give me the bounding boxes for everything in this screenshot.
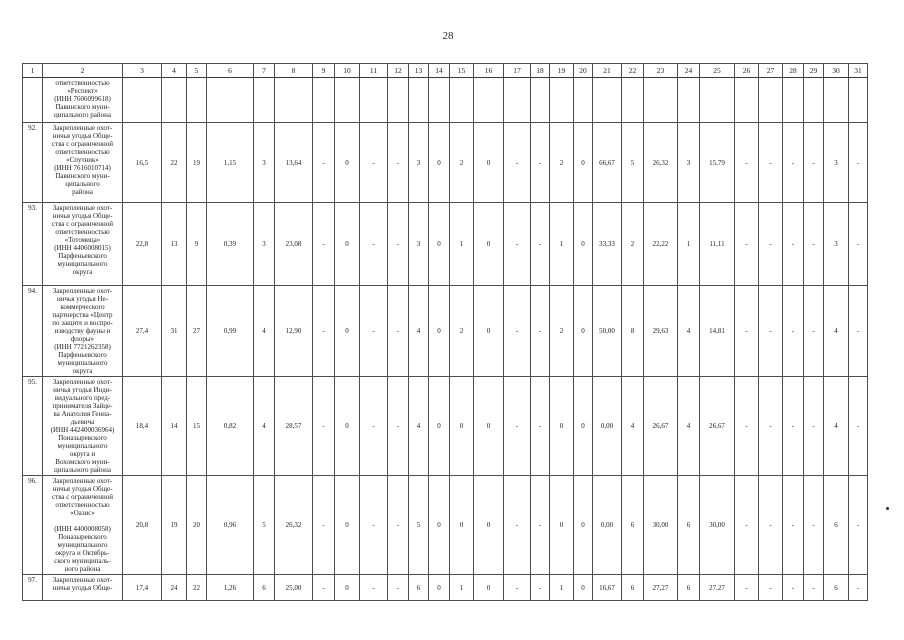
value-cell-c12: - xyxy=(388,377,409,476)
hunting-grounds-table: 1234567891011121314151617181920212223242… xyxy=(22,63,868,601)
col-header-3: 3 xyxy=(123,64,162,78)
value-cell-c4: 24 xyxy=(162,575,187,601)
value-cell-c25: 30,00 xyxy=(700,476,735,575)
value-cell-c7 xyxy=(254,78,275,123)
value-cell-c4: 19 xyxy=(162,476,187,575)
value-cell-c16: 0 xyxy=(474,575,504,601)
value-cell-c9 xyxy=(313,78,335,123)
org-name-cell: Закрепленные охот- ничья угодья Не- комм… xyxy=(43,286,123,377)
col-header-2: 2 xyxy=(43,64,123,78)
value-cell-c30: 6 xyxy=(824,575,849,601)
scan-speck-artifact xyxy=(886,507,889,510)
value-cell-c26: - xyxy=(735,286,759,377)
value-cell-c5: 15 xyxy=(187,377,207,476)
value-cell-c22: 6 xyxy=(622,476,644,575)
value-cell-c19: 2 xyxy=(550,286,574,377)
value-cell-c20: 0 xyxy=(574,286,593,377)
col-header-13: 13 xyxy=(409,64,429,78)
col-header-27: 27 xyxy=(759,64,783,78)
value-cell-c29 xyxy=(804,78,824,123)
col-header-18: 18 xyxy=(531,64,550,78)
value-cell-c10: 0 xyxy=(335,377,360,476)
value-cell-c3: 20,8 xyxy=(123,476,162,575)
value-cell-c9: - xyxy=(313,123,335,203)
value-cell-c12: - xyxy=(388,476,409,575)
value-cell-c25: 26,67 xyxy=(700,377,735,476)
value-cell-c24: 4 xyxy=(678,377,700,476)
value-cell-c17: - xyxy=(504,377,531,476)
value-cell-c3: 18,4 xyxy=(123,377,162,476)
value-cell-c26: - xyxy=(735,575,759,601)
row-number-cell: 94. xyxy=(23,286,43,377)
value-cell-c24 xyxy=(678,78,700,123)
value-cell-c20: 0 xyxy=(574,575,593,601)
value-cell-c9: - xyxy=(313,476,335,575)
value-cell-c23: 26,32 xyxy=(644,123,678,203)
value-cell-c17: - xyxy=(504,123,531,203)
value-cell-c19: 1 xyxy=(550,203,574,286)
value-cell-c25 xyxy=(700,78,735,123)
value-cell-c6 xyxy=(207,78,254,123)
value-cell-c15: 1 xyxy=(450,575,474,601)
value-cell-c8: 28,57 xyxy=(275,377,313,476)
value-cell-c3 xyxy=(123,78,162,123)
value-cell-c15: 2 xyxy=(450,286,474,377)
value-cell-c10: 0 xyxy=(335,575,360,601)
value-cell-c6: 0,82 xyxy=(207,377,254,476)
value-cell-c3: 16,5 xyxy=(123,123,162,203)
col-header-31: 31 xyxy=(849,64,868,78)
value-cell-c17 xyxy=(504,78,531,123)
value-cell-c10: 0 xyxy=(335,476,360,575)
col-header-25: 25 xyxy=(700,64,735,78)
value-cell-c29: - xyxy=(804,286,824,377)
value-cell-c21 xyxy=(593,78,622,123)
value-cell-c17: - xyxy=(504,203,531,286)
value-cell-c30: 3 xyxy=(824,123,849,203)
value-cell-c18: - xyxy=(531,286,550,377)
col-header-15: 15 xyxy=(450,64,474,78)
value-cell-c16: 0 xyxy=(474,476,504,575)
col-header-1: 1 xyxy=(23,64,43,78)
value-cell-c8: 26,32 xyxy=(275,476,313,575)
col-header-24: 24 xyxy=(678,64,700,78)
value-cell-c24: 4 xyxy=(678,286,700,377)
value-cell-c30: 4 xyxy=(824,286,849,377)
org-name-cell: Закрепленные охот- ничья угодья Обще- ст… xyxy=(43,476,123,575)
table-row: 93.Закрепленные охот- ничья угодья Обще-… xyxy=(23,203,868,286)
value-cell-c13: 3 xyxy=(409,203,429,286)
value-cell-c31: - xyxy=(849,377,868,476)
value-cell-c19: 2 xyxy=(550,123,574,203)
value-cell-c18: - xyxy=(531,575,550,601)
value-cell-c24: 6 xyxy=(678,575,700,601)
value-cell-c10: 0 xyxy=(335,123,360,203)
value-cell-c17: - xyxy=(504,476,531,575)
value-cell-c11: - xyxy=(360,575,388,601)
value-cell-c16: 0 xyxy=(474,377,504,476)
column-number-header-row: 1234567891011121314151617181920212223242… xyxy=(23,64,868,78)
value-cell-c11: - xyxy=(360,286,388,377)
value-cell-c27: - xyxy=(759,286,783,377)
value-cell-c3: 27,4 xyxy=(123,286,162,377)
value-cell-c18: - xyxy=(531,203,550,286)
table-row: ответственностью «Респект» (ИНН 76060996… xyxy=(23,78,868,123)
value-cell-c25: 14,81 xyxy=(700,286,735,377)
value-cell-c28: - xyxy=(783,123,804,203)
value-cell-c8: 13,64 xyxy=(275,123,313,203)
value-cell-c15: 0 xyxy=(450,377,474,476)
value-cell-c23: 30,00 xyxy=(644,476,678,575)
row-number-cell: 96. xyxy=(23,476,43,575)
value-cell-c18: - xyxy=(531,476,550,575)
col-header-4: 4 xyxy=(162,64,187,78)
value-cell-c3: 17,4 xyxy=(123,575,162,601)
value-cell-c22: 4 xyxy=(622,377,644,476)
col-header-23: 23 xyxy=(644,64,678,78)
value-cell-c27: - xyxy=(759,476,783,575)
value-cell-c6: 0,99 xyxy=(207,286,254,377)
value-cell-c22 xyxy=(622,78,644,123)
value-cell-c9: - xyxy=(313,575,335,601)
value-cell-c31: - xyxy=(849,123,868,203)
table-row: 94.Закрепленные охот- ничья угодья Не- к… xyxy=(23,286,868,377)
value-cell-c14: 0 xyxy=(429,286,450,377)
value-cell-c4: 22 xyxy=(162,123,187,203)
value-cell-c22: 6 xyxy=(622,575,644,601)
row-number-cell xyxy=(23,78,43,123)
value-cell-c20: 0 xyxy=(574,123,593,203)
value-cell-c4: 14 xyxy=(162,377,187,476)
value-cell-c22: 8 xyxy=(622,286,644,377)
value-cell-c11: - xyxy=(360,476,388,575)
org-name-cell: ответственностью «Респект» (ИНН 76060996… xyxy=(43,78,123,123)
col-header-17: 17 xyxy=(504,64,531,78)
value-cell-c5: 19 xyxy=(187,123,207,203)
value-cell-c30 xyxy=(824,78,849,123)
value-cell-c12 xyxy=(388,78,409,123)
value-cell-c18: - xyxy=(531,123,550,203)
value-cell-c21: 50,00 xyxy=(593,286,622,377)
col-header-12: 12 xyxy=(388,64,409,78)
value-cell-c28: - xyxy=(783,203,804,286)
col-header-8: 8 xyxy=(275,64,313,78)
value-cell-c7: 3 xyxy=(254,203,275,286)
value-cell-c7: 4 xyxy=(254,377,275,476)
col-header-7: 7 xyxy=(254,64,275,78)
value-cell-c15: 0 xyxy=(450,476,474,575)
value-cell-c13: 3 xyxy=(409,123,429,203)
value-cell-c13 xyxy=(409,78,429,123)
value-cell-c31: - xyxy=(849,476,868,575)
value-cell-c31: - xyxy=(849,203,868,286)
value-cell-c10 xyxy=(335,78,360,123)
value-cell-c26: - xyxy=(735,476,759,575)
value-cell-c26 xyxy=(735,78,759,123)
value-cell-c28: - xyxy=(783,286,804,377)
value-cell-c11: - xyxy=(360,123,388,203)
value-cell-c3: 22,8 xyxy=(123,203,162,286)
value-cell-c18 xyxy=(531,78,550,123)
col-header-10: 10 xyxy=(335,64,360,78)
table-row: 95.Закрепленные охот- ничья угодья Инди-… xyxy=(23,377,868,476)
value-cell-c11: - xyxy=(360,377,388,476)
value-cell-c10: 0 xyxy=(335,203,360,286)
value-cell-c15 xyxy=(450,78,474,123)
value-cell-c30: 4 xyxy=(824,377,849,476)
col-header-20: 20 xyxy=(574,64,593,78)
value-cell-c21: 0,00 xyxy=(593,377,622,476)
value-cell-c28 xyxy=(783,78,804,123)
value-cell-c27: - xyxy=(759,203,783,286)
value-cell-c8: 12,90 xyxy=(275,286,313,377)
value-cell-c21: 66,67 xyxy=(593,123,622,203)
value-cell-c15: 2 xyxy=(450,123,474,203)
value-cell-c11: - xyxy=(360,203,388,286)
value-cell-c15: 1 xyxy=(450,203,474,286)
value-cell-c22: 5 xyxy=(622,123,644,203)
value-cell-c23: 27,27 xyxy=(644,575,678,601)
value-cell-c24: 3 xyxy=(678,123,700,203)
value-cell-c19: 0 xyxy=(550,476,574,575)
value-cell-c14: 0 xyxy=(429,575,450,601)
col-header-28: 28 xyxy=(783,64,804,78)
value-cell-c21: 0,00 xyxy=(593,476,622,575)
value-cell-c14: 0 xyxy=(429,377,450,476)
value-cell-c5: 27 xyxy=(187,286,207,377)
col-header-11: 11 xyxy=(360,64,388,78)
value-cell-c9: - xyxy=(313,286,335,377)
page-number: 28 xyxy=(428,30,468,42)
value-cell-c17: - xyxy=(504,575,531,601)
value-cell-c6: 0,96 xyxy=(207,476,254,575)
row-number-cell: 97. xyxy=(23,575,43,601)
value-cell-c31: - xyxy=(849,575,868,601)
col-header-21: 21 xyxy=(593,64,622,78)
col-header-16: 16 xyxy=(474,64,504,78)
value-cell-c20: 0 xyxy=(574,476,593,575)
value-cell-c6: 1,15 xyxy=(207,123,254,203)
value-cell-c14: 0 xyxy=(429,203,450,286)
value-cell-c23: 26,67 xyxy=(644,377,678,476)
value-cell-c13: 4 xyxy=(409,377,429,476)
value-cell-c26: - xyxy=(735,377,759,476)
value-cell-c27: - xyxy=(759,377,783,476)
col-header-22: 22 xyxy=(622,64,644,78)
value-cell-c31: - xyxy=(849,286,868,377)
value-cell-c5: 9 xyxy=(187,203,207,286)
value-cell-c29: - xyxy=(804,123,824,203)
value-cell-c20 xyxy=(574,78,593,123)
value-cell-c20: 0 xyxy=(574,377,593,476)
value-cell-c12: - xyxy=(388,123,409,203)
table-row: 96.Закрепленные охот- ничья угодья Обще-… xyxy=(23,476,868,575)
value-cell-c26: - xyxy=(735,123,759,203)
value-cell-c8: 25,00 xyxy=(275,575,313,601)
value-cell-c4 xyxy=(162,78,187,123)
value-cell-c23: 22,22 xyxy=(644,203,678,286)
value-cell-c29: - xyxy=(804,575,824,601)
value-cell-c5: 22 xyxy=(187,575,207,601)
value-cell-c16 xyxy=(474,78,504,123)
col-header-29: 29 xyxy=(804,64,824,78)
value-cell-c27: - xyxy=(759,575,783,601)
value-cell-c9: - xyxy=(313,377,335,476)
table-row: 97.Закрепленные охот- ничья угодья Обще-… xyxy=(23,575,868,601)
value-cell-c6: 1,26 xyxy=(207,575,254,601)
value-cell-c13: 5 xyxy=(409,476,429,575)
value-cell-c26: - xyxy=(735,203,759,286)
value-cell-c24: 1 xyxy=(678,203,700,286)
row-number-cell: 92. xyxy=(23,123,43,203)
value-cell-c6: 0,39 xyxy=(207,203,254,286)
table-row: 92.Закрепленные охот- ничья угодья Обще-… xyxy=(23,123,868,203)
value-cell-c25: 27,27 xyxy=(700,575,735,601)
value-cell-c12: - xyxy=(388,286,409,377)
value-cell-c29: - xyxy=(804,377,824,476)
value-cell-c20: 0 xyxy=(574,203,593,286)
value-cell-c27 xyxy=(759,78,783,123)
row-number-cell: 93. xyxy=(23,203,43,286)
value-cell-c28: - xyxy=(783,476,804,575)
value-cell-c23: 29,63 xyxy=(644,286,678,377)
value-cell-c13: 6 xyxy=(409,575,429,601)
col-header-5: 5 xyxy=(187,64,207,78)
value-cell-c4: 13 xyxy=(162,203,187,286)
value-cell-c10: 0 xyxy=(335,286,360,377)
value-cell-c30: 6 xyxy=(824,476,849,575)
value-cell-c14: 0 xyxy=(429,123,450,203)
value-cell-c14: 0 xyxy=(429,476,450,575)
col-header-30: 30 xyxy=(824,64,849,78)
value-cell-c18: - xyxy=(531,377,550,476)
value-cell-c21: 33,33 xyxy=(593,203,622,286)
value-cell-c21: 16,67 xyxy=(593,575,622,601)
org-name-cell: Закрепленные охот- ничья угодья Обще- ст… xyxy=(43,203,123,286)
col-header-14: 14 xyxy=(429,64,450,78)
col-header-9: 9 xyxy=(313,64,335,78)
value-cell-c12: - xyxy=(388,203,409,286)
value-cell-c7: 3 xyxy=(254,123,275,203)
value-cell-c12: - xyxy=(388,575,409,601)
value-cell-c7: 5 xyxy=(254,476,275,575)
value-cell-c29: - xyxy=(804,203,824,286)
value-cell-c13: 4 xyxy=(409,286,429,377)
org-name-cell: Закрепленные охот- ничья угодья Обще- xyxy=(43,575,123,601)
org-name-cell: Закрепленные охот- ничья угодья Инди- ви… xyxy=(43,377,123,476)
value-cell-c17: - xyxy=(504,286,531,377)
value-cell-c5 xyxy=(187,78,207,123)
value-cell-c11 xyxy=(360,78,388,123)
value-cell-c30: 3 xyxy=(824,203,849,286)
col-header-19: 19 xyxy=(550,64,574,78)
value-cell-c16: 0 xyxy=(474,286,504,377)
value-cell-c23 xyxy=(644,78,678,123)
value-cell-c8 xyxy=(275,78,313,123)
value-cell-c24: 6 xyxy=(678,476,700,575)
org-name-cell: Закрепленные охот- ничья угодья Обще- ст… xyxy=(43,123,123,203)
value-cell-c7: 4 xyxy=(254,286,275,377)
value-cell-c22: 2 xyxy=(622,203,644,286)
value-cell-c7: 6 xyxy=(254,575,275,601)
value-cell-c29: - xyxy=(804,476,824,575)
value-cell-c14 xyxy=(429,78,450,123)
value-cell-c19: 1 xyxy=(550,575,574,601)
value-cell-c27: - xyxy=(759,123,783,203)
value-cell-c8: 23,08 xyxy=(275,203,313,286)
value-cell-c16: 0 xyxy=(474,123,504,203)
value-cell-c25: 15,79 xyxy=(700,123,735,203)
value-cell-c19: 0 xyxy=(550,377,574,476)
value-cell-c16: 0 xyxy=(474,203,504,286)
value-cell-c4: 31 xyxy=(162,286,187,377)
value-cell-c19 xyxy=(550,78,574,123)
col-header-26: 26 xyxy=(735,64,759,78)
row-number-cell: 95. xyxy=(23,377,43,476)
value-cell-c9: - xyxy=(313,203,335,286)
value-cell-c25: 11,11 xyxy=(700,203,735,286)
value-cell-c5: 20 xyxy=(187,476,207,575)
col-header-6: 6 xyxy=(207,64,254,78)
value-cell-c28: - xyxy=(783,377,804,476)
value-cell-c28: - xyxy=(783,575,804,601)
value-cell-c31 xyxy=(849,78,868,123)
